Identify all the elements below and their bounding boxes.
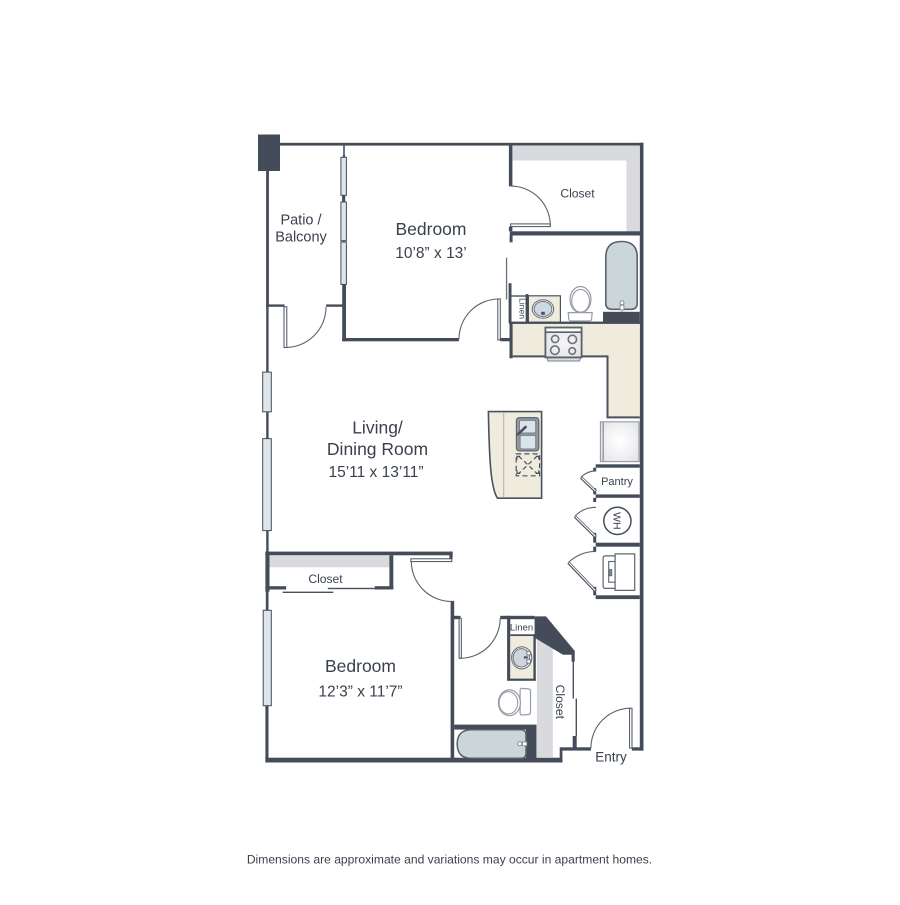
svg-text:10’8” x 13’: 10’8” x 13’ <box>395 245 467 262</box>
svg-text:12’3” x 11’7”: 12’3” x 11’7” <box>318 684 402 701</box>
svg-text:WH: WH <box>611 512 623 530</box>
svg-text:Closet: Closet <box>553 685 567 720</box>
svg-text:Patio /: Patio / <box>280 213 322 229</box>
svg-text:Linen: Linen <box>517 298 527 319</box>
svg-text:Linen: Linen <box>510 623 533 634</box>
svg-text:15’11 x 13’11”: 15’11 x 13’11” <box>328 464 423 481</box>
svg-text:Bedroom: Bedroom <box>395 219 466 239</box>
svg-text:Pantry: Pantry <box>601 476 633 488</box>
svg-text:Dining Room: Dining Room <box>327 439 428 459</box>
svg-text:Dimensions are approximate and: Dimensions are approximate and variation… <box>247 853 652 867</box>
svg-text:Bedroom: Bedroom <box>325 656 396 676</box>
svg-text:Entry: Entry <box>595 750 627 765</box>
svg-text:Balcony: Balcony <box>275 230 327 246</box>
svg-text:Living/: Living/ <box>352 418 403 438</box>
svg-text:Closet: Closet <box>560 187 595 201</box>
svg-text:Closet: Closet <box>308 572 343 586</box>
